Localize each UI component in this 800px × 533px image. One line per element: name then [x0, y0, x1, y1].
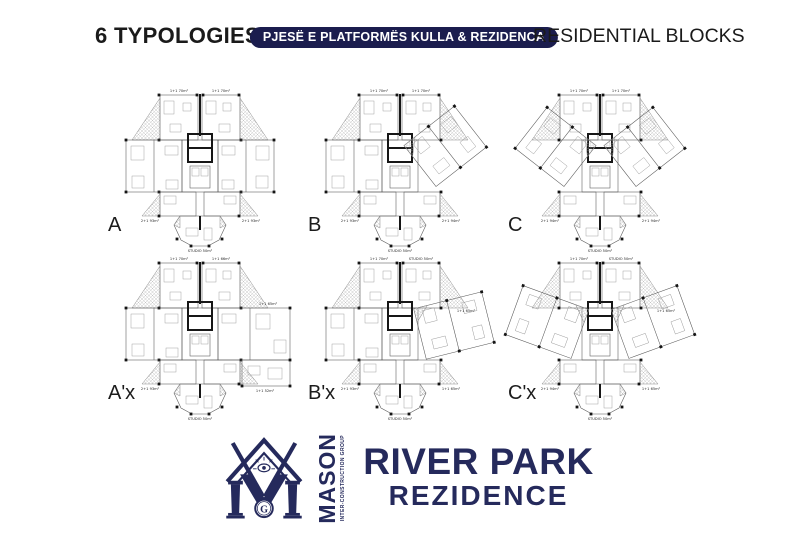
- brand-footer: G MASON INTER-CONSTRUCTION GROUP RIVER P…: [6, 432, 800, 524]
- svg-text:1+1 65m²: 1+1 65m²: [642, 387, 661, 391]
- svg-text:1+1 65m²: 1+1 65m²: [259, 302, 278, 306]
- svg-text:1+1 65m²: 1+1 65m²: [442, 387, 461, 391]
- svg-text:STUDIO 50m²: STUDIO 50m²: [609, 257, 634, 261]
- svg-text:2+1 93m²: 2+1 93m²: [341, 219, 360, 223]
- svg-text:1+1 70m²: 1+1 70m²: [170, 257, 189, 261]
- svg-text:2+1 93m²: 2+1 93m²: [141, 219, 160, 223]
- svg-text:2+1 93m²: 2+1 93m²: [242, 219, 261, 223]
- svg-text:STUDIO 50m²: STUDIO 50m²: [409, 257, 434, 261]
- svg-text:STUDIO 50m²: STUDIO 50m²: [388, 417, 413, 421]
- svg-text:2+1 94m²: 2+1 94m²: [541, 387, 560, 391]
- brand-vertical-block: MASON INTER-CONSTRUCTION GROUP: [316, 432, 347, 524]
- plan-letter: C: [508, 214, 522, 237]
- column-left: [227, 481, 245, 519]
- chevron-outer: [227, 440, 301, 481]
- column-right: [284, 481, 302, 519]
- floorplan-cell-C'x: 1+1 70m²STUDIO 50m²2+1 94m²1+1 65m²STUDI…: [500, 250, 700, 426]
- svg-text:2+1 93m²: 2+1 93m²: [141, 387, 160, 391]
- mason-emblem-icon: G: [218, 432, 310, 524]
- plan-letter: C'x: [508, 382, 536, 405]
- blocks-title: RESIDENTIAL BLOCKS: [533, 25, 745, 48]
- svg-text:1+1 66m²: 1+1 66m²: [212, 257, 231, 261]
- monogram-letter: G: [260, 505, 268, 516]
- plan-letter: B: [308, 214, 321, 237]
- floorplan-cell-C: 1+1 70m²1+1 70m²2+1 94m²2+1 94m²STUDIO 5…: [500, 82, 700, 258]
- typologies-title: 6 TYPOLOGIES: [95, 23, 260, 49]
- svg-text:1+1 70m²: 1+1 70m²: [412, 89, 431, 93]
- svg-text:1+1 70m²: 1+1 70m²: [612, 89, 631, 93]
- svg-text:1+1 52m²: 1+1 52m²: [256, 389, 275, 393]
- svg-text:1+1 70m²: 1+1 70m²: [212, 89, 231, 93]
- project-name-block: RIVER PARK REZIDENCE: [363, 443, 593, 512]
- svg-text:STUDIO 50m²: STUDIO 50m²: [188, 417, 213, 421]
- eye-icon: [253, 457, 275, 472]
- floorplan-drawing-C: 1+1 70m²1+1 70m²2+1 94m²2+1 94m²STUDIO 5…: [500, 82, 700, 258]
- floorplan-drawing-B: 1+1 70m²1+1 70m²2+1 93m²2+1 94m²STUDIO 5…: [300, 82, 500, 258]
- brand-name: MASON: [316, 433, 339, 524]
- svg-text:2+1 93m²: 2+1 93m²: [341, 387, 360, 391]
- poster-canvas: 6 TYPOLOGIES PJESË E PLATFORMËS KULLA & …: [0, 0, 800, 533]
- project-subtitle: REZIDENCE: [389, 480, 569, 512]
- svg-text:1+1 70m²: 1+1 70m²: [370, 89, 389, 93]
- svg-text:1+1 65m²: 1+1 65m²: [457, 309, 476, 313]
- svg-text:1+1 70m²: 1+1 70m²: [370, 257, 389, 261]
- svg-text:1+1 70m²: 1+1 70m²: [570, 257, 589, 261]
- svg-text:2+1 94m²: 2+1 94m²: [642, 219, 661, 223]
- svg-text:1+1 65m²: 1+1 65m²: [657, 309, 676, 313]
- plan-letter: A: [108, 214, 121, 237]
- project-title: RIVER PARK: [363, 443, 593, 480]
- floorplan-cell-B: 1+1 70m²1+1 70m²2+1 93m²2+1 94m²STUDIO 5…: [300, 82, 500, 258]
- plan-letter: B'x: [308, 382, 335, 405]
- floorplan-cell-B'x: 1+1 70m²STUDIO 50m²2+1 93m²1+1 65m²STUDI…: [300, 250, 500, 426]
- svg-text:2+1 94m²: 2+1 94m²: [442, 219, 461, 223]
- floorplan-drawing-A: 1+1 70m²1+1 70m²2+1 93m²2+1 93m²STUDIO 5…: [100, 82, 300, 258]
- floorplan-cell-A'x: 1+1 70m²1+1 66m²2+1 93m²1+1 52m²STUDIO 5…: [100, 250, 300, 426]
- platform-badge: PJESË E PLATFORMËS KULLA & REZIDENCA: [250, 27, 558, 48]
- svg-text:1+1 70m²: 1+1 70m²: [570, 89, 589, 93]
- brand-subtitle: INTER-CONSTRUCTION GROUP: [340, 435, 347, 521]
- svg-text:STUDIO 50m²: STUDIO 50m²: [588, 417, 613, 421]
- svg-text:2+1 94m²: 2+1 94m²: [541, 219, 560, 223]
- svg-text:1+1 70m²: 1+1 70m²: [170, 89, 189, 93]
- floorplan-cell-A: 1+1 70m²1+1 70m²2+1 93m²2+1 93m²STUDIO 5…: [100, 82, 300, 258]
- plan-letter: A'x: [108, 382, 135, 405]
